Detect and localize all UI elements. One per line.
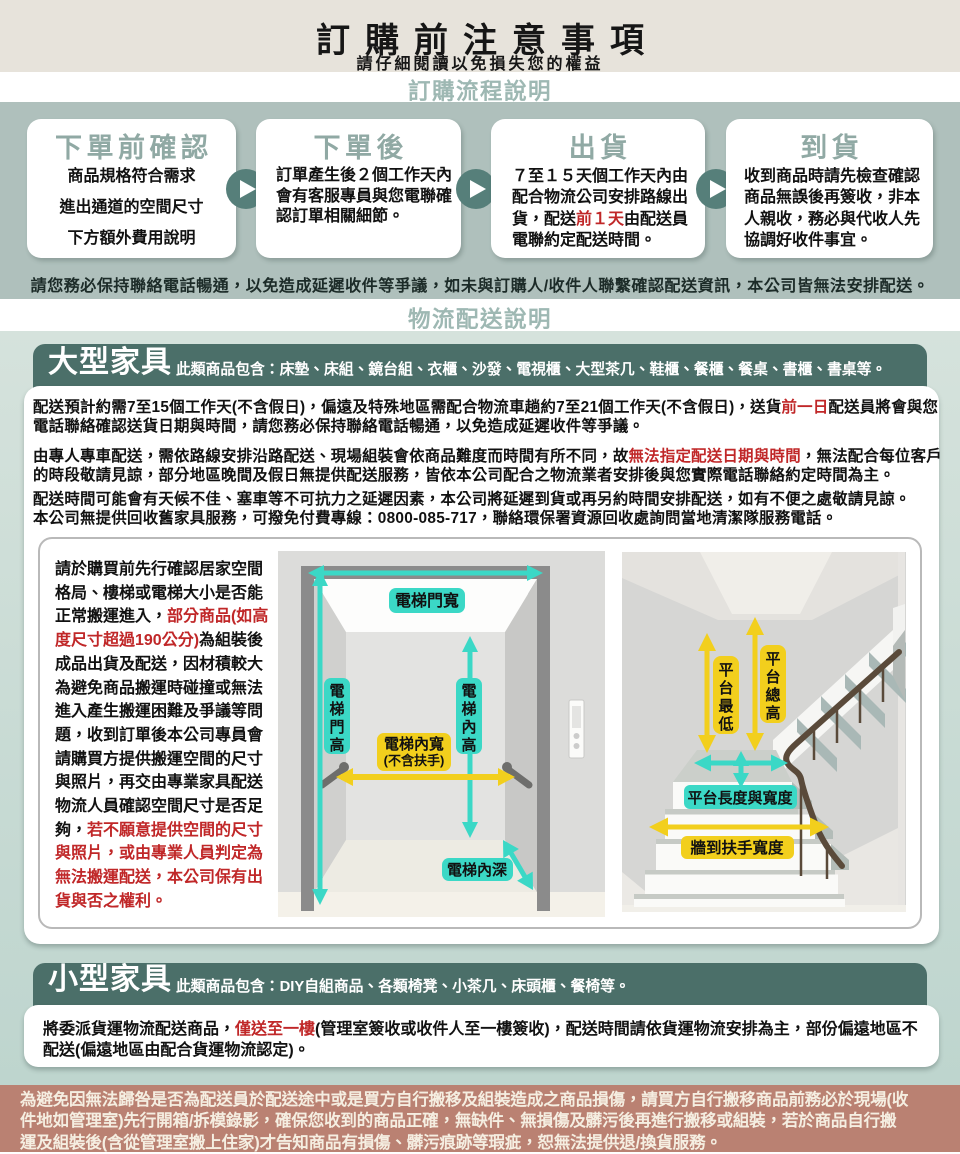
svg-text:電梯內寬: 電梯內寬 [384, 735, 444, 753]
svg-text:平台長度與寬度: 平台長度與寬度 [687, 789, 793, 807]
svg-text:內: 內 [461, 719, 476, 736]
svg-text:最: 最 [718, 697, 733, 715]
svg-text:平: 平 [718, 662, 733, 679]
svg-text:梯: 梯 [329, 700, 344, 718]
svg-text:梯: 梯 [461, 700, 476, 718]
svg-text:台: 台 [718, 679, 733, 697]
svg-text:平: 平 [765, 651, 780, 668]
svg-text:高: 高 [461, 736, 476, 754]
svg-text:(不含扶手): (不含扶手) [384, 753, 445, 768]
svg-text:電: 電 [461, 683, 476, 700]
svg-text:電梯內深: 電梯內深 [447, 861, 508, 879]
svg-text:門: 門 [329, 719, 344, 736]
svg-text:低: 低 [717, 715, 733, 733]
svg-text:電梯門寬: 電梯門寬 [395, 591, 459, 610]
svg-text:牆到扶手寬度: 牆到扶手寬度 [690, 838, 784, 857]
svg-text:總: 總 [765, 686, 780, 704]
svg-text:台: 台 [765, 668, 780, 686]
svg-text:高: 高 [765, 704, 780, 722]
svg-text:高: 高 [329, 736, 344, 754]
svg-text:電: 電 [329, 683, 344, 700]
